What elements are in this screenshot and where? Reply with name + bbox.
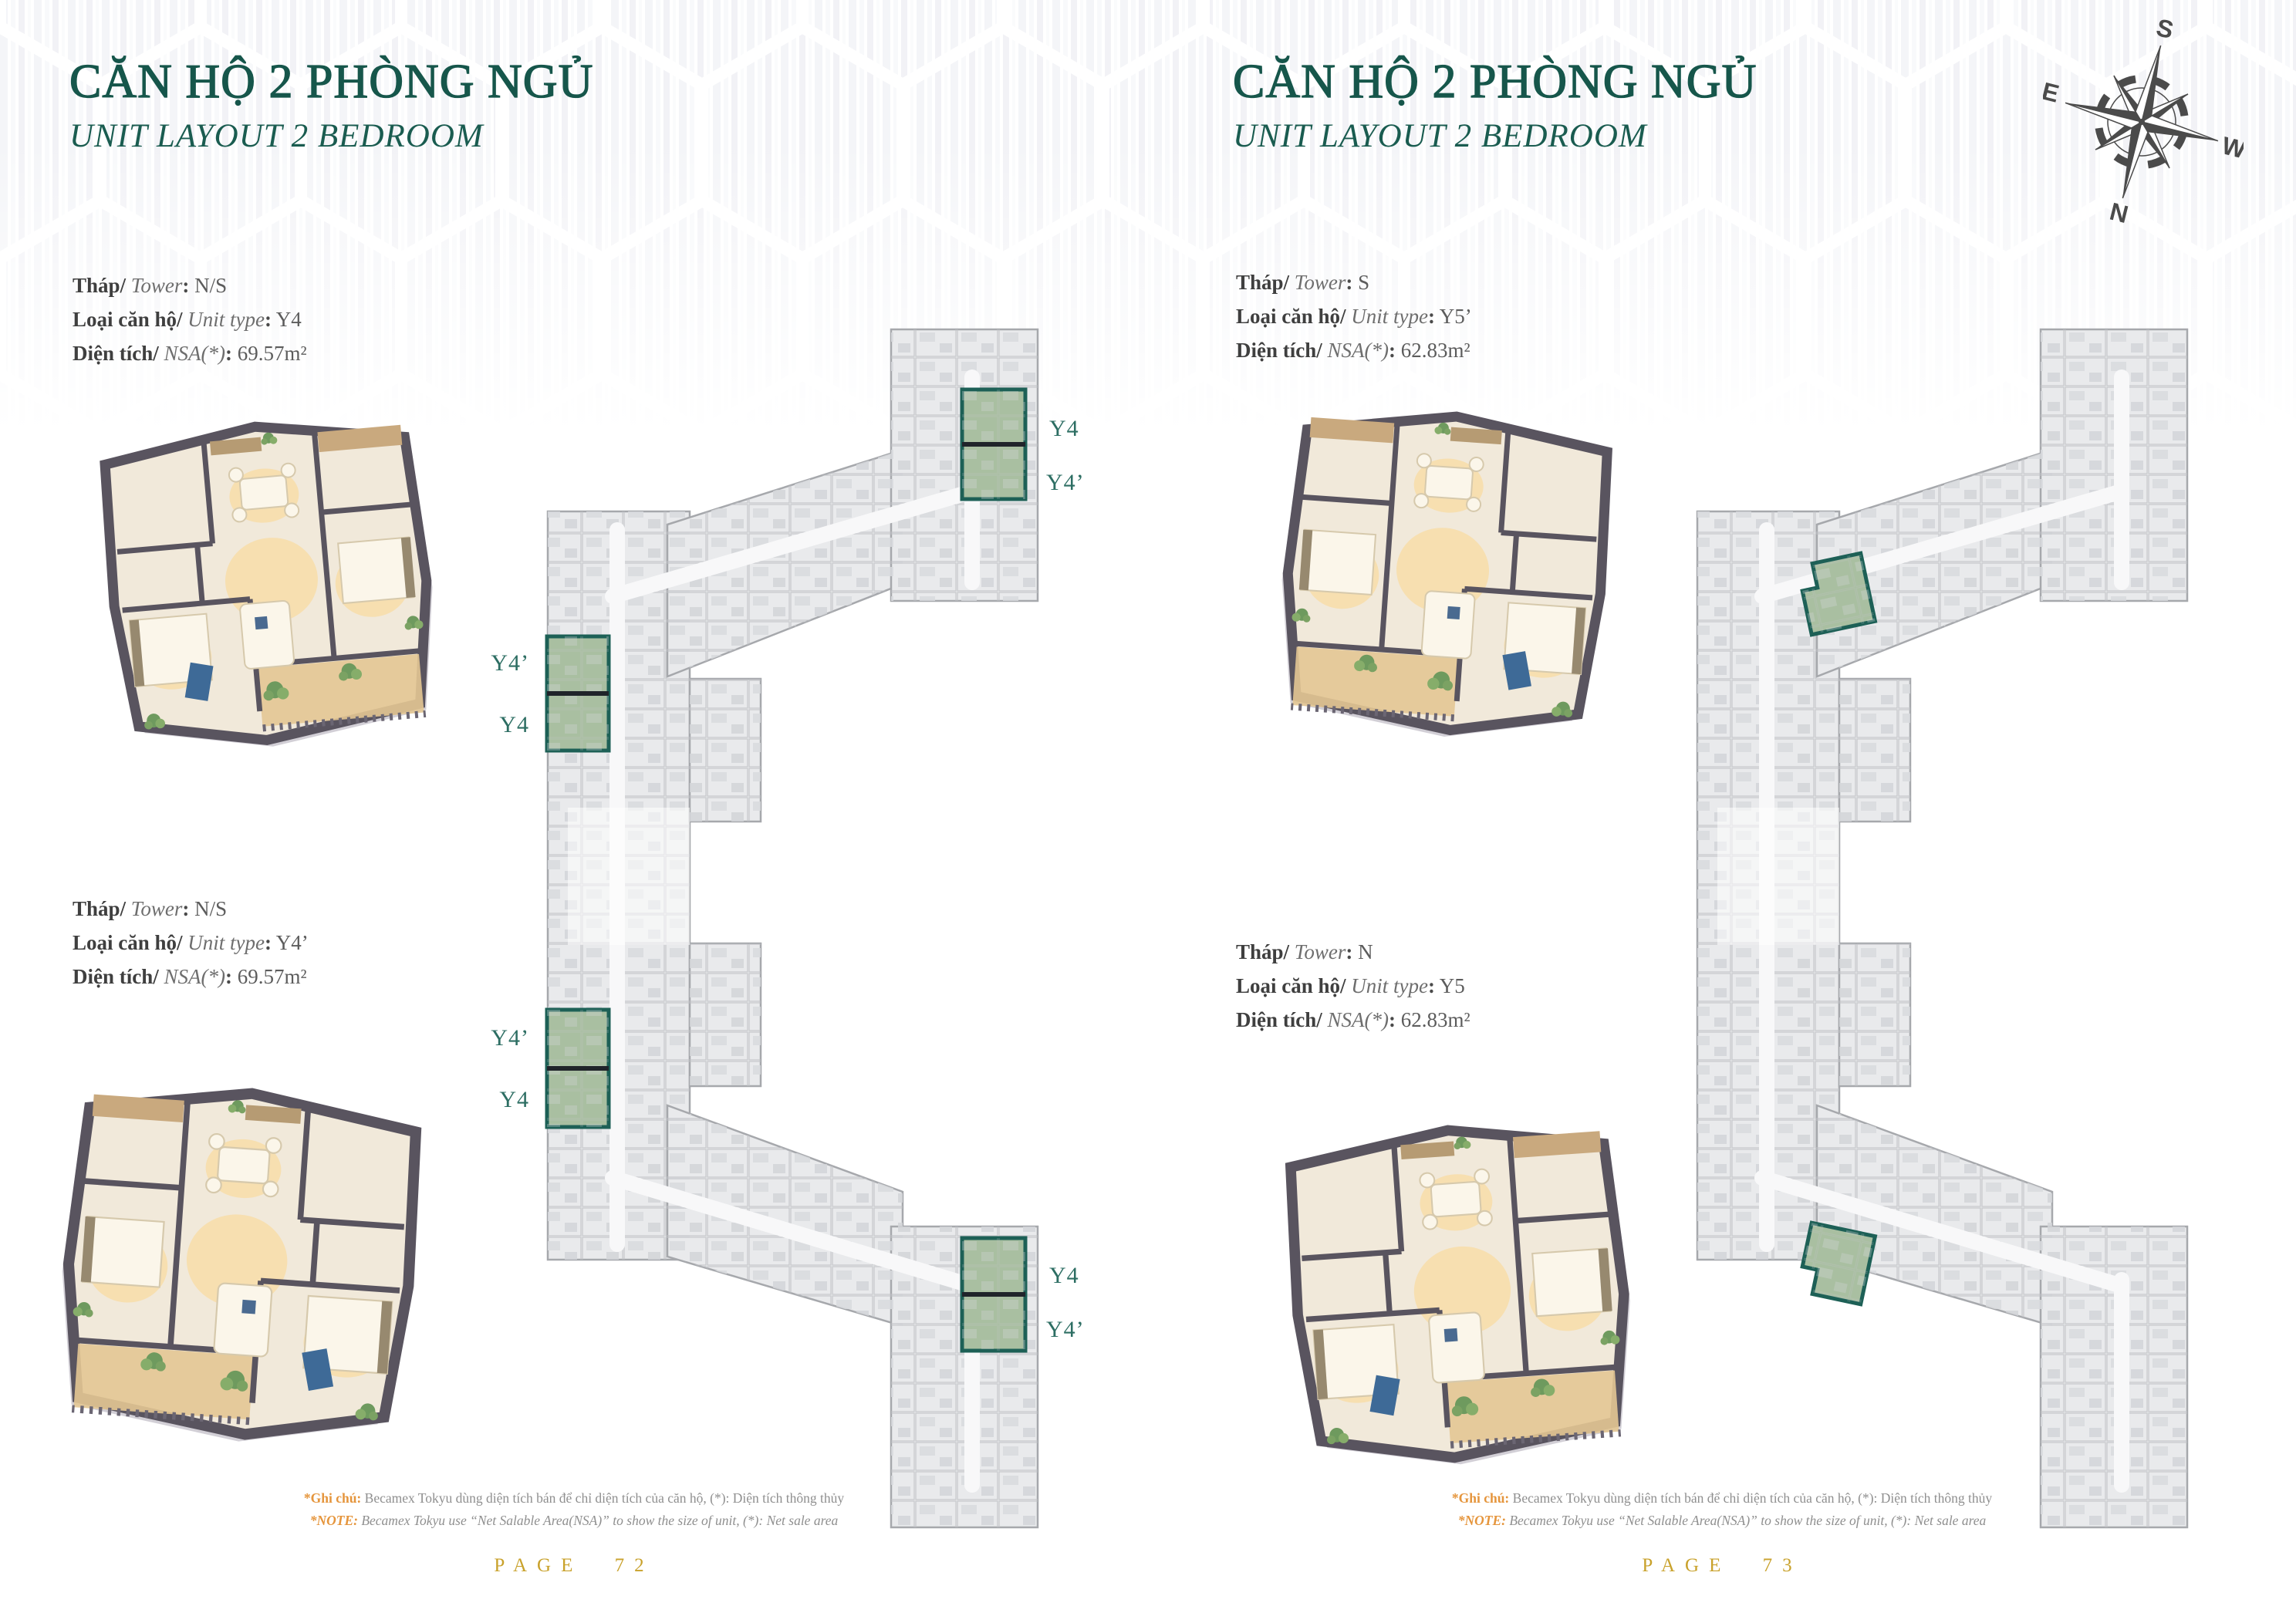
floor-plan-right <box>1636 328 2291 1531</box>
info-line-area: Diện tích/ NSA(*): 62.83m² <box>1236 1003 1470 1037</box>
note-en: *NOTE: Becamex Tokyu use “Net Salable Ar… <box>0 1510 1148 1532</box>
note-vi: *Ghi chú: Becamex Tokyu dùng diện tích b… <box>1148 1487 2296 1510</box>
title-block-left: CĂN HỘ 2 PHÒNG NGỦ UNIT LAYOUT 2 BEDROOM <box>69 57 593 153</box>
brochure-spread: CĂN HỘ 2 PHÒNG NGỦ UNIT LAYOUT 2 BEDROOM… <box>0 0 2296 1623</box>
unit-info-top-left: Tháp/ Tower: N/S Loại căn hộ/ Unit type:… <box>73 268 307 370</box>
svg-text:N: N <box>2107 197 2131 229</box>
title-block-right: CĂN HỘ 2 PHÒNG NGỦ UNIT LAYOUT 2 BEDROOM <box>1233 57 1757 153</box>
svg-text:Y4’: Y4’ <box>491 1025 529 1051</box>
footnotes-left: *Ghi chú: Becamex Tokyu dùng diện tích b… <box>0 1487 1148 1532</box>
unit-3d-render-y4-prime <box>52 1065 438 1458</box>
page-number-left: PAGE 72 <box>0 1555 1148 1577</box>
unit-info-bottom-right: Tháp/ Tower: N Loại căn hộ/ Unit type: Y… <box>1236 935 1470 1037</box>
svg-text:W: W <box>2219 131 2244 164</box>
svg-text:Y4: Y4 <box>1049 1263 1079 1288</box>
svg-text:S: S <box>2153 14 2176 44</box>
info-line-area: Diện tích/ NSA(*): 69.57m² <box>73 960 309 994</box>
note-vi: *Ghi chú: Becamex Tokyu dùng diện tích b… <box>0 1487 1148 1510</box>
info-line-type: Loại căn hộ/ Unit type: Y4’ <box>73 926 309 960</box>
info-line-type: Loại căn hộ/ Unit type: Y4 <box>73 302 307 336</box>
info-line-tower: Tháp/ Tower: N <box>1236 935 1470 969</box>
svg-text:Y4’: Y4’ <box>1046 1317 1085 1342</box>
svg-text:E: E <box>2043 77 2061 108</box>
unit-3d-render-y5-prime <box>1265 393 1636 748</box>
floor-plan-left: Y4Y4’Y4’Y4Y4’Y4Y4Y4’ <box>486 328 1142 1531</box>
svg-text:Y4: Y4 <box>499 1087 529 1112</box>
info-line-area: Diện tích/ NSA(*): 62.83m² <box>1236 333 1472 367</box>
note-en: *NOTE: Becamex Tokyu use “Net Salable Ar… <box>1148 1510 2296 1532</box>
info-line-tower: Tháp/ Tower: N/S <box>73 268 307 302</box>
svg-text:Y4: Y4 <box>499 712 529 737</box>
page-subtitle: UNIT LAYOUT 2 BEDROOM <box>69 120 593 153</box>
page-number-right: PAGE 73 <box>1148 1555 2296 1577</box>
page-title: CĂN HỘ 2 PHÒNG NGỦ <box>69 57 593 107</box>
svg-text:Y4’: Y4’ <box>491 650 529 676</box>
svg-text:Y4’: Y4’ <box>1046 470 1085 495</box>
info-line-type: Loại căn hộ/ Unit type: Y5’ <box>1236 299 1472 333</box>
page-right: CĂN HỘ 2 PHÒNG NGỦ UNIT LAYOUT 2 BEDROOM… <box>1148 0 2296 1623</box>
info-line-tower: Tháp/ Tower: S <box>1236 265 1472 299</box>
info-line-type: Loại căn hộ/ Unit type: Y5 <box>1236 969 1470 1003</box>
unit-3d-render-y5 <box>1269 1098 1639 1484</box>
compass-rose-icon: SWNE <box>2043 14 2244 230</box>
unit-info-bottom-left: Tháp/ Tower: N/S Loại căn hộ/ Unit type:… <box>73 892 309 994</box>
page-left: CĂN HỘ 2 PHÒNG NGỦ UNIT LAYOUT 2 BEDROOM… <box>0 0 1148 1623</box>
unit-3d-render-y4 <box>86 400 441 762</box>
page-title: CĂN HỘ 2 PHÒNG NGỦ <box>1233 57 1757 107</box>
page-subtitle: UNIT LAYOUT 2 BEDROOM <box>1233 120 1757 153</box>
svg-text:Y4: Y4 <box>1049 416 1079 441</box>
info-line-area: Diện tích/ NSA(*): 69.57m² <box>73 336 307 370</box>
info-line-tower: Tháp/ Tower: N/S <box>73 892 309 926</box>
footnotes-right: *Ghi chú: Becamex Tokyu dùng diện tích b… <box>1148 1487 2296 1532</box>
unit-info-top-right: Tháp/ Tower: S Loại căn hộ/ Unit type: Y… <box>1236 265 1472 367</box>
